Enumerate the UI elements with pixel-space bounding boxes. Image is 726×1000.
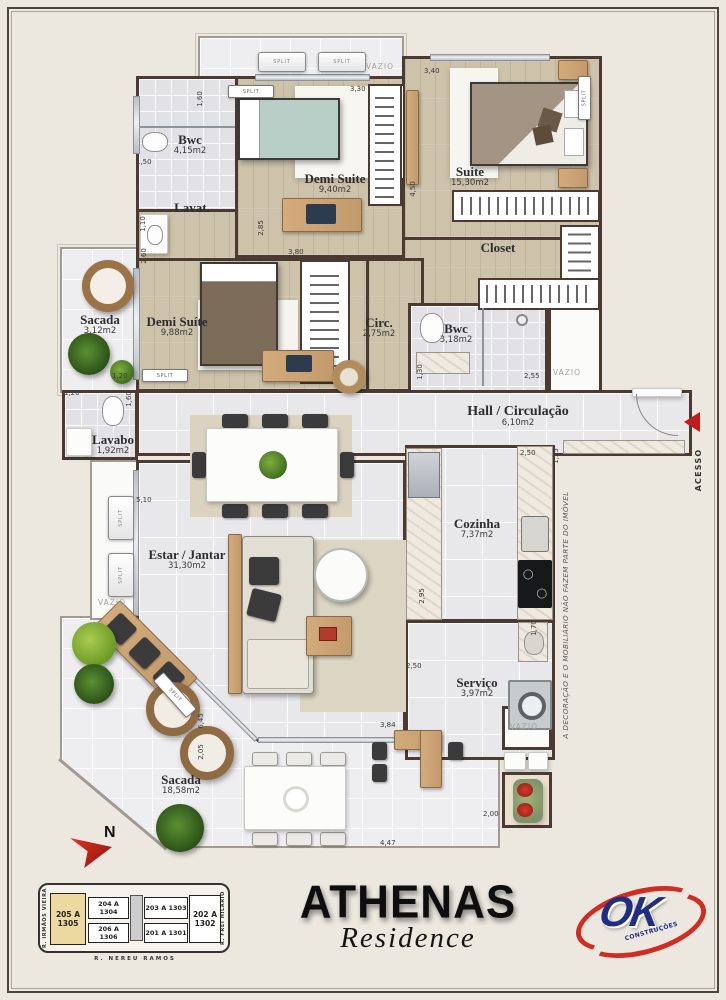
shower-head-icon bbox=[516, 314, 528, 326]
split-label: SPLIT bbox=[333, 59, 351, 65]
dim-label: 4,50 bbox=[408, 179, 418, 199]
chair bbox=[252, 832, 278, 846]
lime-bush bbox=[72, 622, 116, 666]
dim-label: 1,10 bbox=[138, 214, 148, 234]
bwc1-window bbox=[133, 96, 140, 154]
room-label-lavat: Lavat. bbox=[147, 201, 237, 215]
unit-203: 203 A 1303 bbox=[144, 897, 188, 919]
room-name: Demi Suite bbox=[290, 172, 380, 186]
rattan-chair bbox=[82, 260, 134, 312]
dim-label: 1,20 bbox=[110, 620, 126, 628]
chaise bbox=[247, 639, 309, 689]
room-label-lavabo: Lavabo 1,92m2 bbox=[70, 433, 156, 457]
shower-glass-bwc-2 bbox=[482, 308, 484, 386]
suite-shelf bbox=[406, 90, 419, 185]
throw-pillow bbox=[532, 124, 553, 145]
room-area: 2,75m2 bbox=[339, 330, 419, 339]
split-unit: SPLIT bbox=[578, 76, 591, 120]
room-name: Demi Suíte bbox=[132, 315, 222, 329]
dim-label: 1,60 bbox=[195, 89, 205, 109]
dim-label: 2,05 bbox=[196, 742, 206, 762]
dim-label: 2,50 bbox=[406, 662, 422, 670]
chair bbox=[286, 752, 312, 766]
coffee-table bbox=[306, 616, 352, 656]
laptop bbox=[306, 204, 336, 224]
split-label: SPLIT bbox=[157, 373, 174, 379]
room-label-sacada-side: Sacada 3,12m2 bbox=[60, 313, 140, 337]
room-label-suite: Suite 15,30m2 bbox=[425, 165, 515, 189]
chair bbox=[372, 742, 387, 760]
chair bbox=[252, 752, 278, 766]
room-label-hall: Hall / Circulação 6,10m2 bbox=[438, 404, 598, 429]
washer-drum bbox=[518, 692, 546, 720]
dim-label: 3,30 bbox=[350, 85, 366, 93]
room-label-estar-jantar: Estar / Jantar 31,30m2 bbox=[117, 548, 257, 572]
chair bbox=[222, 504, 248, 518]
room-label-bwc-1: Bwc 4,15m2 bbox=[145, 133, 235, 157]
room-label-servico: Serviço 3,97m2 bbox=[432, 676, 522, 700]
floor-plan: SPLIT SPLIT SPLIT SPLIT SPLIT SPLIT SPLI… bbox=[0, 0, 726, 872]
bed-pillow bbox=[202, 264, 276, 282]
cooktop bbox=[518, 560, 552, 608]
unit-205: 205 A 1305 bbox=[50, 893, 86, 945]
floorplan-poster: SPLIT SPLIT SPLIT SPLIT SPLIT SPLIT SPLI… bbox=[0, 0, 726, 1000]
split-unit: SPLIT bbox=[228, 85, 274, 98]
room-area: 9,88m2 bbox=[132, 329, 222, 338]
room-label-circ: Circ. 2,75m2 bbox=[339, 316, 419, 340]
dim-label: 2,55 bbox=[524, 372, 540, 380]
kitchen-sink bbox=[521, 516, 549, 552]
dim-label: 1,20 bbox=[112, 372, 128, 380]
acesso-label: ACESSO bbox=[694, 428, 706, 512]
dim-label: 2,95 bbox=[417, 586, 427, 606]
room-name: Cozinha bbox=[432, 517, 522, 531]
chair bbox=[302, 504, 328, 518]
room-label-demi-suite-2: Demi Suíte 9,88m2 bbox=[132, 315, 222, 339]
chair bbox=[340, 452, 354, 478]
room-name: Serviço bbox=[432, 676, 522, 690]
palm-plant bbox=[74, 664, 114, 704]
centerpiece-plant bbox=[259, 451, 287, 479]
suite-window bbox=[430, 54, 550, 61]
ac-condenser: SPLIT bbox=[258, 52, 306, 72]
dim-label: 2,85 bbox=[256, 218, 266, 238]
room-name: Hall / Circulação bbox=[438, 404, 598, 419]
chair bbox=[448, 742, 463, 760]
room-label-cozinha: Cozinha 7,37m2 bbox=[432, 517, 522, 541]
palm-plant bbox=[68, 333, 110, 375]
room-name: Lavabo bbox=[70, 433, 156, 447]
room-area: 6,10m2 bbox=[438, 419, 598, 428]
room-area: 31,30m2 bbox=[117, 562, 257, 571]
unit-204: 204 A 1304 bbox=[88, 897, 129, 919]
room-name: Circ. bbox=[339, 316, 419, 330]
room-area: 9,40m2 bbox=[290, 186, 380, 195]
chair bbox=[302, 414, 328, 428]
chair bbox=[222, 414, 248, 428]
dim-label: 2,50 bbox=[520, 449, 536, 457]
room-name: Estar / Jantar bbox=[117, 548, 257, 562]
laptop bbox=[286, 355, 312, 372]
unit-206: 206 A 1306 bbox=[88, 923, 129, 943]
shaft-right bbox=[548, 306, 602, 393]
hall-bench bbox=[563, 440, 685, 454]
dim-label: 1,30 bbox=[415, 362, 425, 382]
outdoor-table bbox=[244, 766, 346, 830]
split-label: SPLIT bbox=[273, 59, 291, 65]
dim-label: 5,10 bbox=[136, 496, 152, 504]
room-area: 4,15m2 bbox=[145, 147, 235, 156]
dim-label: 6,45 bbox=[196, 711, 206, 731]
vazio-label-bottom: VAZIO bbox=[510, 722, 538, 731]
shower-glass-bwc-1 bbox=[139, 126, 235, 128]
palm-plant bbox=[156, 804, 204, 852]
dim-label: 1,20 bbox=[64, 389, 80, 397]
split-unit: SPLIT bbox=[142, 369, 188, 382]
project-subtitle: Residence bbox=[258, 922, 558, 955]
vazio-label-top: VAZIO bbox=[366, 62, 394, 71]
flower-planter bbox=[502, 772, 552, 828]
unit-201: 201 A 1301 bbox=[144, 923, 188, 943]
room-label-demi-suite-1: Demi Suite 9,40m2 bbox=[290, 172, 380, 196]
north-label: N bbox=[104, 824, 116, 842]
bed-pillow bbox=[240, 100, 260, 158]
chair bbox=[372, 764, 387, 782]
red-flowers-2 bbox=[517, 803, 533, 817]
ac-condenser: SPLIT bbox=[318, 52, 366, 72]
room-name: Bwc bbox=[145, 133, 235, 147]
dim-label: 2,60 bbox=[139, 246, 149, 266]
room-label-closet: Closet bbox=[453, 241, 543, 255]
room-label-bwc-2: Bwc 3,18m2 bbox=[416, 322, 496, 346]
bed-demi-suite-1 bbox=[238, 98, 340, 160]
chair bbox=[262, 414, 288, 428]
building-keyplan: R. IRMÃOS VIEIRA R. FREI HILÁRIO 205 A 1… bbox=[38, 883, 230, 953]
room-label-sacada-bottom: Sacada 18,58m2 bbox=[136, 773, 226, 797]
sofa-cushion bbox=[246, 588, 282, 622]
closet-rack-bottom bbox=[478, 278, 600, 310]
ac-condenser: SPLIT bbox=[108, 496, 134, 540]
dim-label: 3,40 bbox=[424, 67, 440, 75]
split-label: SPLIT bbox=[243, 89, 260, 95]
dim-label: 3,84 bbox=[380, 721, 396, 729]
dim-label: 2,00 bbox=[483, 810, 499, 818]
basin bbox=[147, 225, 163, 245]
room-area: 18,58m2 bbox=[136, 787, 226, 796]
split-label: SPLIT bbox=[582, 90, 588, 107]
dim-label: 1,60 bbox=[124, 389, 134, 409]
ok-logo: OK CONSTRUÇÕES bbox=[572, 884, 708, 958]
elevator-core bbox=[130, 895, 143, 941]
chair bbox=[286, 832, 312, 846]
closet-rack-right bbox=[560, 225, 600, 285]
small-box-2 bbox=[528, 752, 548, 770]
l-shaped-table-leg bbox=[420, 730, 442, 788]
dim-label: 3,80 bbox=[288, 248, 304, 256]
room-area: 3,97m2 bbox=[432, 690, 522, 699]
vazio-label-left: VAZIO bbox=[98, 598, 126, 607]
chair bbox=[320, 832, 346, 846]
room-area: 1,92m2 bbox=[70, 447, 156, 456]
room-area: 3,18m2 bbox=[416, 336, 496, 345]
street-left: R. IRMÃOS VIEIRA bbox=[42, 887, 48, 949]
bed-pillow bbox=[564, 128, 584, 156]
north-arrow-icon bbox=[70, 838, 112, 868]
demi1-window bbox=[255, 74, 370, 81]
dim-label: 1,35 bbox=[551, 446, 561, 466]
disclaimer-text: A DECORAÇÃO E O MOBILIÁRIO NÃO FAZEM PAR… bbox=[561, 445, 575, 785]
toilet-lavabo bbox=[102, 396, 124, 426]
bed-suite bbox=[470, 82, 588, 166]
room-name: Sacada bbox=[60, 313, 140, 327]
room-area: 15,30m2 bbox=[425, 179, 515, 188]
bowl bbox=[283, 786, 309, 812]
street-bottom: R. NEREU RAMOS bbox=[70, 956, 200, 962]
room-name: Bwc bbox=[416, 322, 496, 336]
nightstand bbox=[558, 168, 588, 188]
magazines bbox=[319, 627, 337, 641]
closet-rack-top bbox=[452, 190, 600, 222]
room-area: 7,37m2 bbox=[432, 531, 522, 540]
fridge bbox=[408, 452, 440, 498]
room-name: Closet bbox=[453, 241, 543, 255]
room-area: 3,12m2 bbox=[60, 327, 140, 336]
chair bbox=[192, 452, 206, 478]
room-name: Suite bbox=[425, 165, 515, 179]
dim-label: 1,50 bbox=[136, 158, 152, 166]
chair bbox=[262, 504, 288, 518]
chair bbox=[320, 752, 346, 766]
unit-202: 202 A 1302 bbox=[189, 895, 221, 943]
round-armchair bbox=[314, 548, 368, 602]
dim-label: 4,47 bbox=[380, 839, 396, 847]
bench-cushion bbox=[128, 636, 162, 670]
room-name: Sacada bbox=[136, 773, 226, 787]
split-label: SPLIT bbox=[118, 509, 124, 527]
dining-table bbox=[206, 428, 338, 502]
room-name: Lavat. bbox=[147, 201, 237, 215]
dim-label: 1,70 bbox=[529, 618, 539, 638]
small-box-1 bbox=[504, 752, 526, 770]
red-flowers-1 bbox=[517, 783, 533, 797]
pouf bbox=[332, 360, 366, 394]
vazio-label-right: VAZIO bbox=[553, 368, 581, 377]
